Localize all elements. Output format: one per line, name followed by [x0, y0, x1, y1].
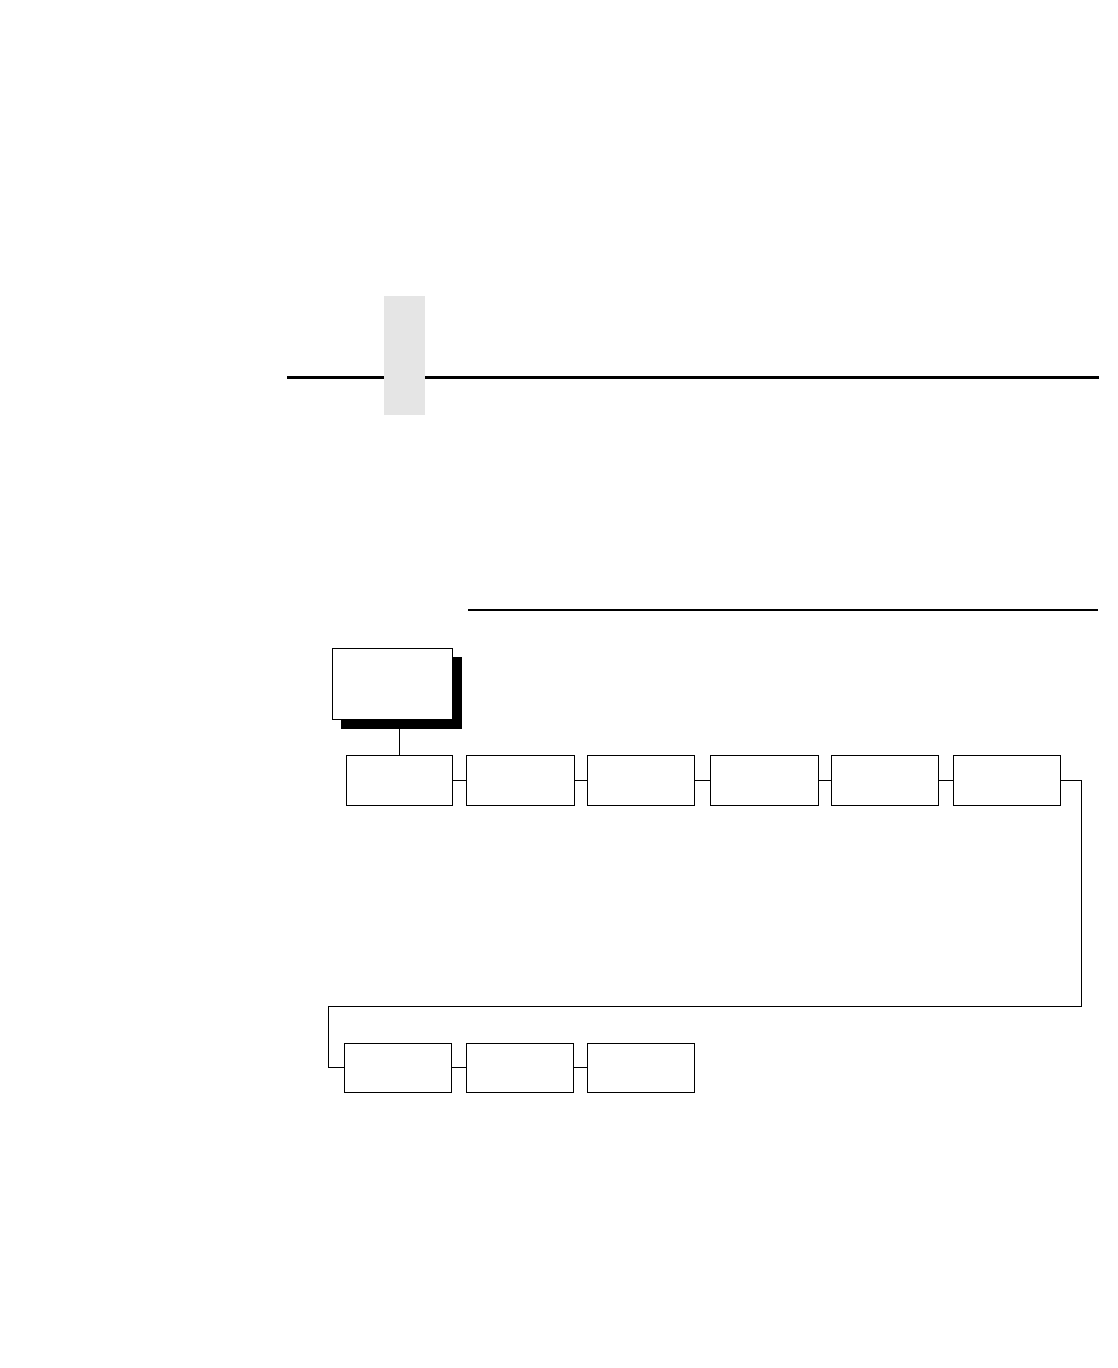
menu-box-row1-1 [346, 755, 453, 806]
connector-row1-1-2 [453, 780, 466, 781]
wrap-connector-stub-right [1061, 780, 1081, 781]
menu-box-row1-2 [466, 755, 575, 806]
connector-row1-3-4 [695, 780, 710, 781]
menu-box-row2-2 [466, 1043, 574, 1093]
wrap-connector-stub-left [328, 1067, 345, 1068]
connector-row1-4-5 [819, 780, 831, 781]
connector-row2-1-2 [452, 1067, 466, 1068]
connector-row1-2-3 [575, 780, 587, 781]
wrap-connector-down-left [328, 1006, 329, 1068]
menu-box-row1-4 [710, 755, 819, 806]
connector-row2-2-3 [574, 1067, 587, 1068]
menu-box-row1-6 [953, 755, 1061, 806]
wrap-connector-across [328, 1006, 1082, 1007]
chapter-tab [384, 296, 425, 415]
connector-row1-5-6 [939, 780, 953, 781]
wrap-connector-down-right [1081, 780, 1082, 1007]
menu-box-row1-5 [831, 755, 939, 806]
menu-root-box [332, 648, 453, 720]
menu-box-row2-1 [344, 1043, 452, 1093]
menu-box-row2-3 [587, 1043, 695, 1093]
page [0, 0, 1118, 1368]
menu-box-row1-3 [587, 755, 695, 806]
connector-root-to-row1 [399, 729, 400, 756]
section-rule [468, 609, 1098, 611]
